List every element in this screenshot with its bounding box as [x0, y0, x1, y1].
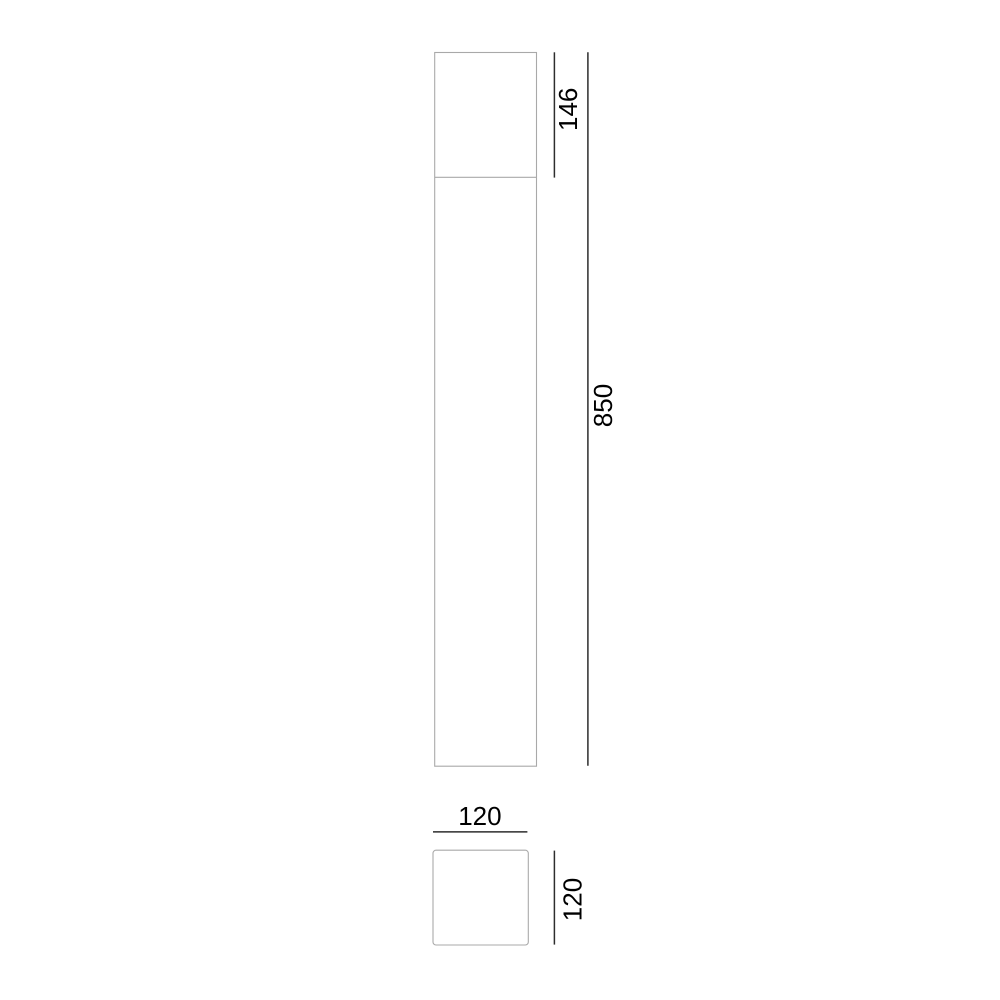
svg-text:120: 120 [458, 801, 501, 831]
svg-text:120: 120 [557, 878, 587, 921]
svg-text:146: 146 [553, 88, 583, 131]
svg-text:850: 850 [588, 384, 618, 427]
